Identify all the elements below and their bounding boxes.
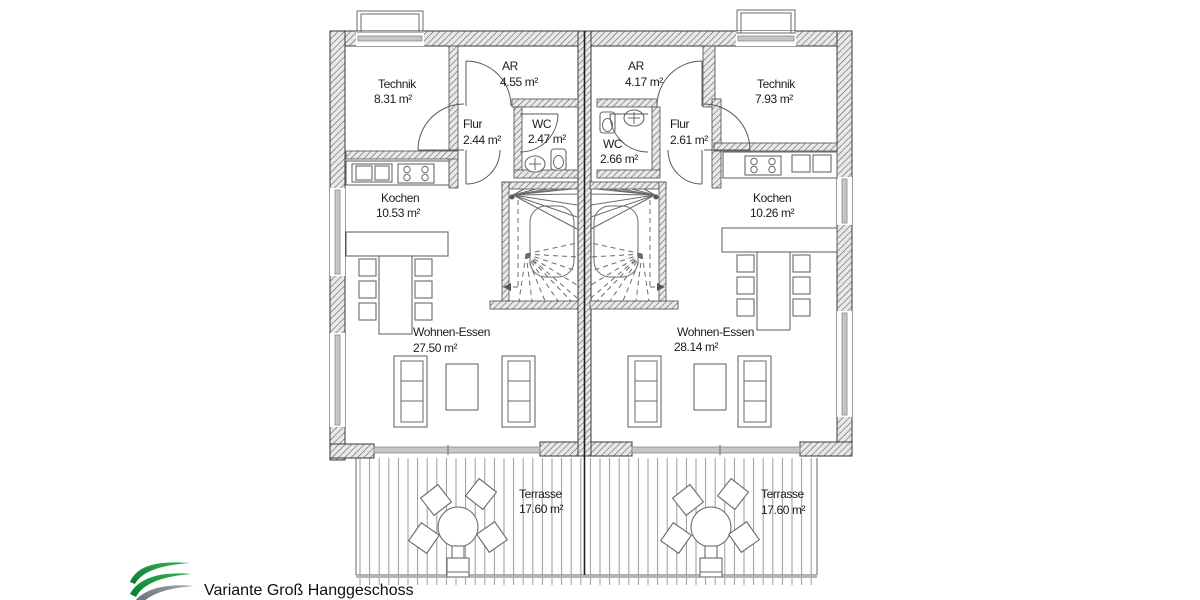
flur-left-area: 2.44 m² bbox=[463, 133, 501, 147]
counter-island-left bbox=[346, 232, 448, 256]
dining-table-right bbox=[757, 252, 790, 330]
wc-fixtures-left bbox=[525, 149, 566, 172]
ar-right-area: 4.17 m² bbox=[625, 75, 663, 89]
terrasse-left-area: 17.60 m² bbox=[519, 502, 564, 516]
north-window-right bbox=[736, 10, 796, 46]
kochen-right-area: 10.26 m² bbox=[750, 206, 795, 220]
sofa-left-a bbox=[394, 356, 427, 427]
terrace-decking bbox=[356, 458, 817, 575]
dining-table-left bbox=[379, 256, 412, 334]
dining-right bbox=[737, 252, 810, 330]
variant-title: Variante Groß Hanggeschoss bbox=[204, 582, 414, 600]
living-left bbox=[394, 356, 535, 427]
logo-swoosh-green-1 bbox=[130, 562, 190, 584]
south-glass-door-left bbox=[374, 445, 540, 455]
stove-left bbox=[398, 164, 434, 183]
terrasse-right-label: Terrasse bbox=[761, 487, 805, 501]
terrace-edge-boards bbox=[356, 578, 817, 585]
north-window-left bbox=[356, 11, 424, 46]
left-unit: Technik 8.31 m² AR 4.55 m² Flur 2.44 m² … bbox=[346, 46, 578, 427]
toilet-left bbox=[551, 149, 566, 170]
wohnen-left-label: Wohnen-Essen bbox=[413, 325, 490, 339]
wc-right-area: 2.66 m² bbox=[600, 152, 638, 166]
counter-island-right bbox=[722, 228, 837, 252]
terrasse-right-area: 17.60 m² bbox=[761, 503, 806, 517]
flur-left-label: Flur bbox=[463, 117, 482, 131]
wc-fixtures-right bbox=[600, 110, 644, 133]
wc-left-label: WC bbox=[532, 117, 552, 131]
south-glass-door-right bbox=[632, 445, 800, 455]
coffee-table-right bbox=[694, 364, 726, 410]
technik-right-area: 7.93 m² bbox=[755, 92, 793, 106]
sink-right bbox=[792, 155, 810, 172]
wohnen-right-area: 28.14 m² bbox=[674, 340, 719, 354]
wc-right-label: WC bbox=[603, 137, 623, 151]
coffee-table-left bbox=[446, 364, 478, 410]
sofa-right-a bbox=[628, 356, 661, 427]
flur-right-label: Flur bbox=[670, 117, 689, 131]
technik-left-label: Technik bbox=[378, 77, 417, 91]
floor-plan-drawing: Terrasse 17.60 m² Terrasse 17.60 m² bbox=[0, 0, 1200, 600]
stove-right bbox=[745, 156, 781, 175]
technik-right-label: Technik bbox=[757, 77, 796, 91]
stairs-left bbox=[503, 189, 577, 301]
flur-right-area: 2.61 m² bbox=[670, 133, 708, 147]
living-right bbox=[628, 356, 771, 427]
wohnen-right-label: Wohnen-Essen bbox=[677, 325, 754, 339]
kochen-left-label: Kochen bbox=[381, 191, 419, 205]
toilet-right bbox=[600, 112, 615, 133]
company-logo bbox=[130, 562, 194, 600]
ar-left-area: 4.55 m² bbox=[500, 75, 538, 89]
dining-left bbox=[359, 256, 432, 334]
technik-left-area: 8.31 m² bbox=[374, 92, 412, 106]
terrace: Terrasse 17.60 m² Terrasse 17.60 m² bbox=[356, 458, 817, 585]
wohnen-left-area: 27.50 m² bbox=[413, 341, 458, 355]
ar-left-label: AR bbox=[502, 59, 519, 73]
floor-plan-page: Terrasse 17.60 m² Terrasse 17.60 m² bbox=[0, 0, 1200, 600]
kochen-left-area: 10.53 m² bbox=[376, 206, 421, 220]
ar-right-label: AR bbox=[628, 59, 645, 73]
stairs-right bbox=[591, 189, 665, 301]
wc-left-area: 2.47 m² bbox=[528, 132, 566, 146]
right-unit: AR 4.17 m² Technik 7.93 m² WC 2.66 m² Fl… bbox=[590, 46, 837, 427]
kochen-right-label: Kochen bbox=[753, 191, 791, 205]
terrasse-left-label: Terrasse bbox=[519, 487, 563, 501]
